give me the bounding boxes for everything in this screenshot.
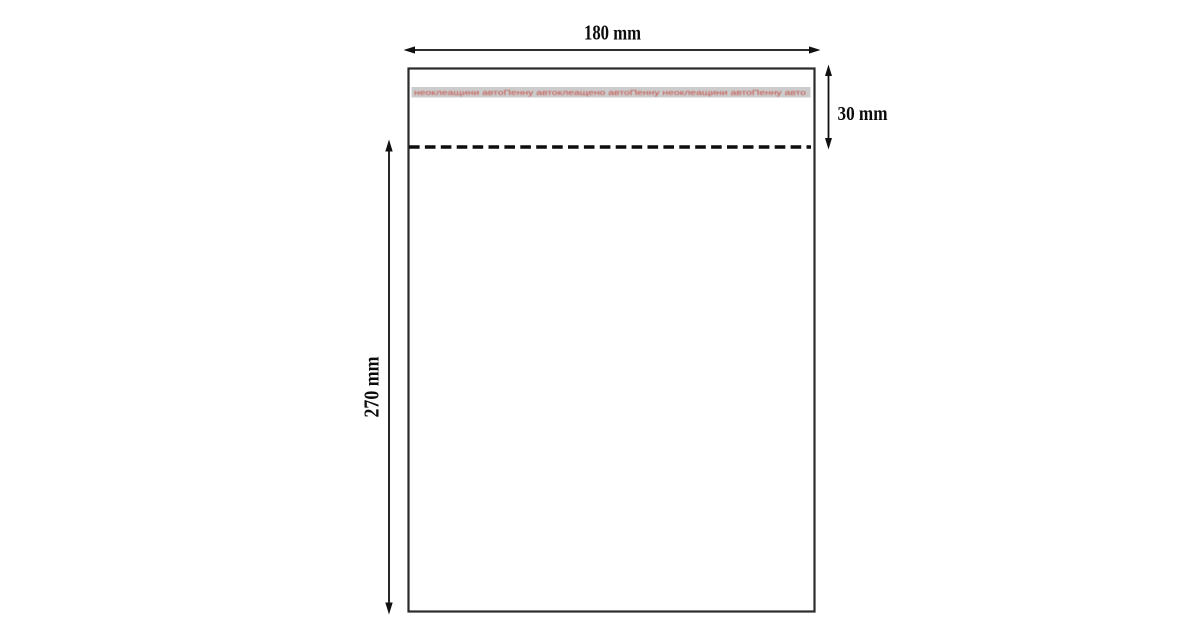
svg-text:270 mm: 270 mm — [360, 356, 384, 417]
svg-text:30 mm: 30 mm — [838, 103, 888, 125]
svg-text:неоклеащини автоПенну автокл: неоклеащини автоПенну автоклеащено автоП… — [414, 88, 806, 97]
svg-text:180 mm: 180 mm — [584, 21, 641, 45]
